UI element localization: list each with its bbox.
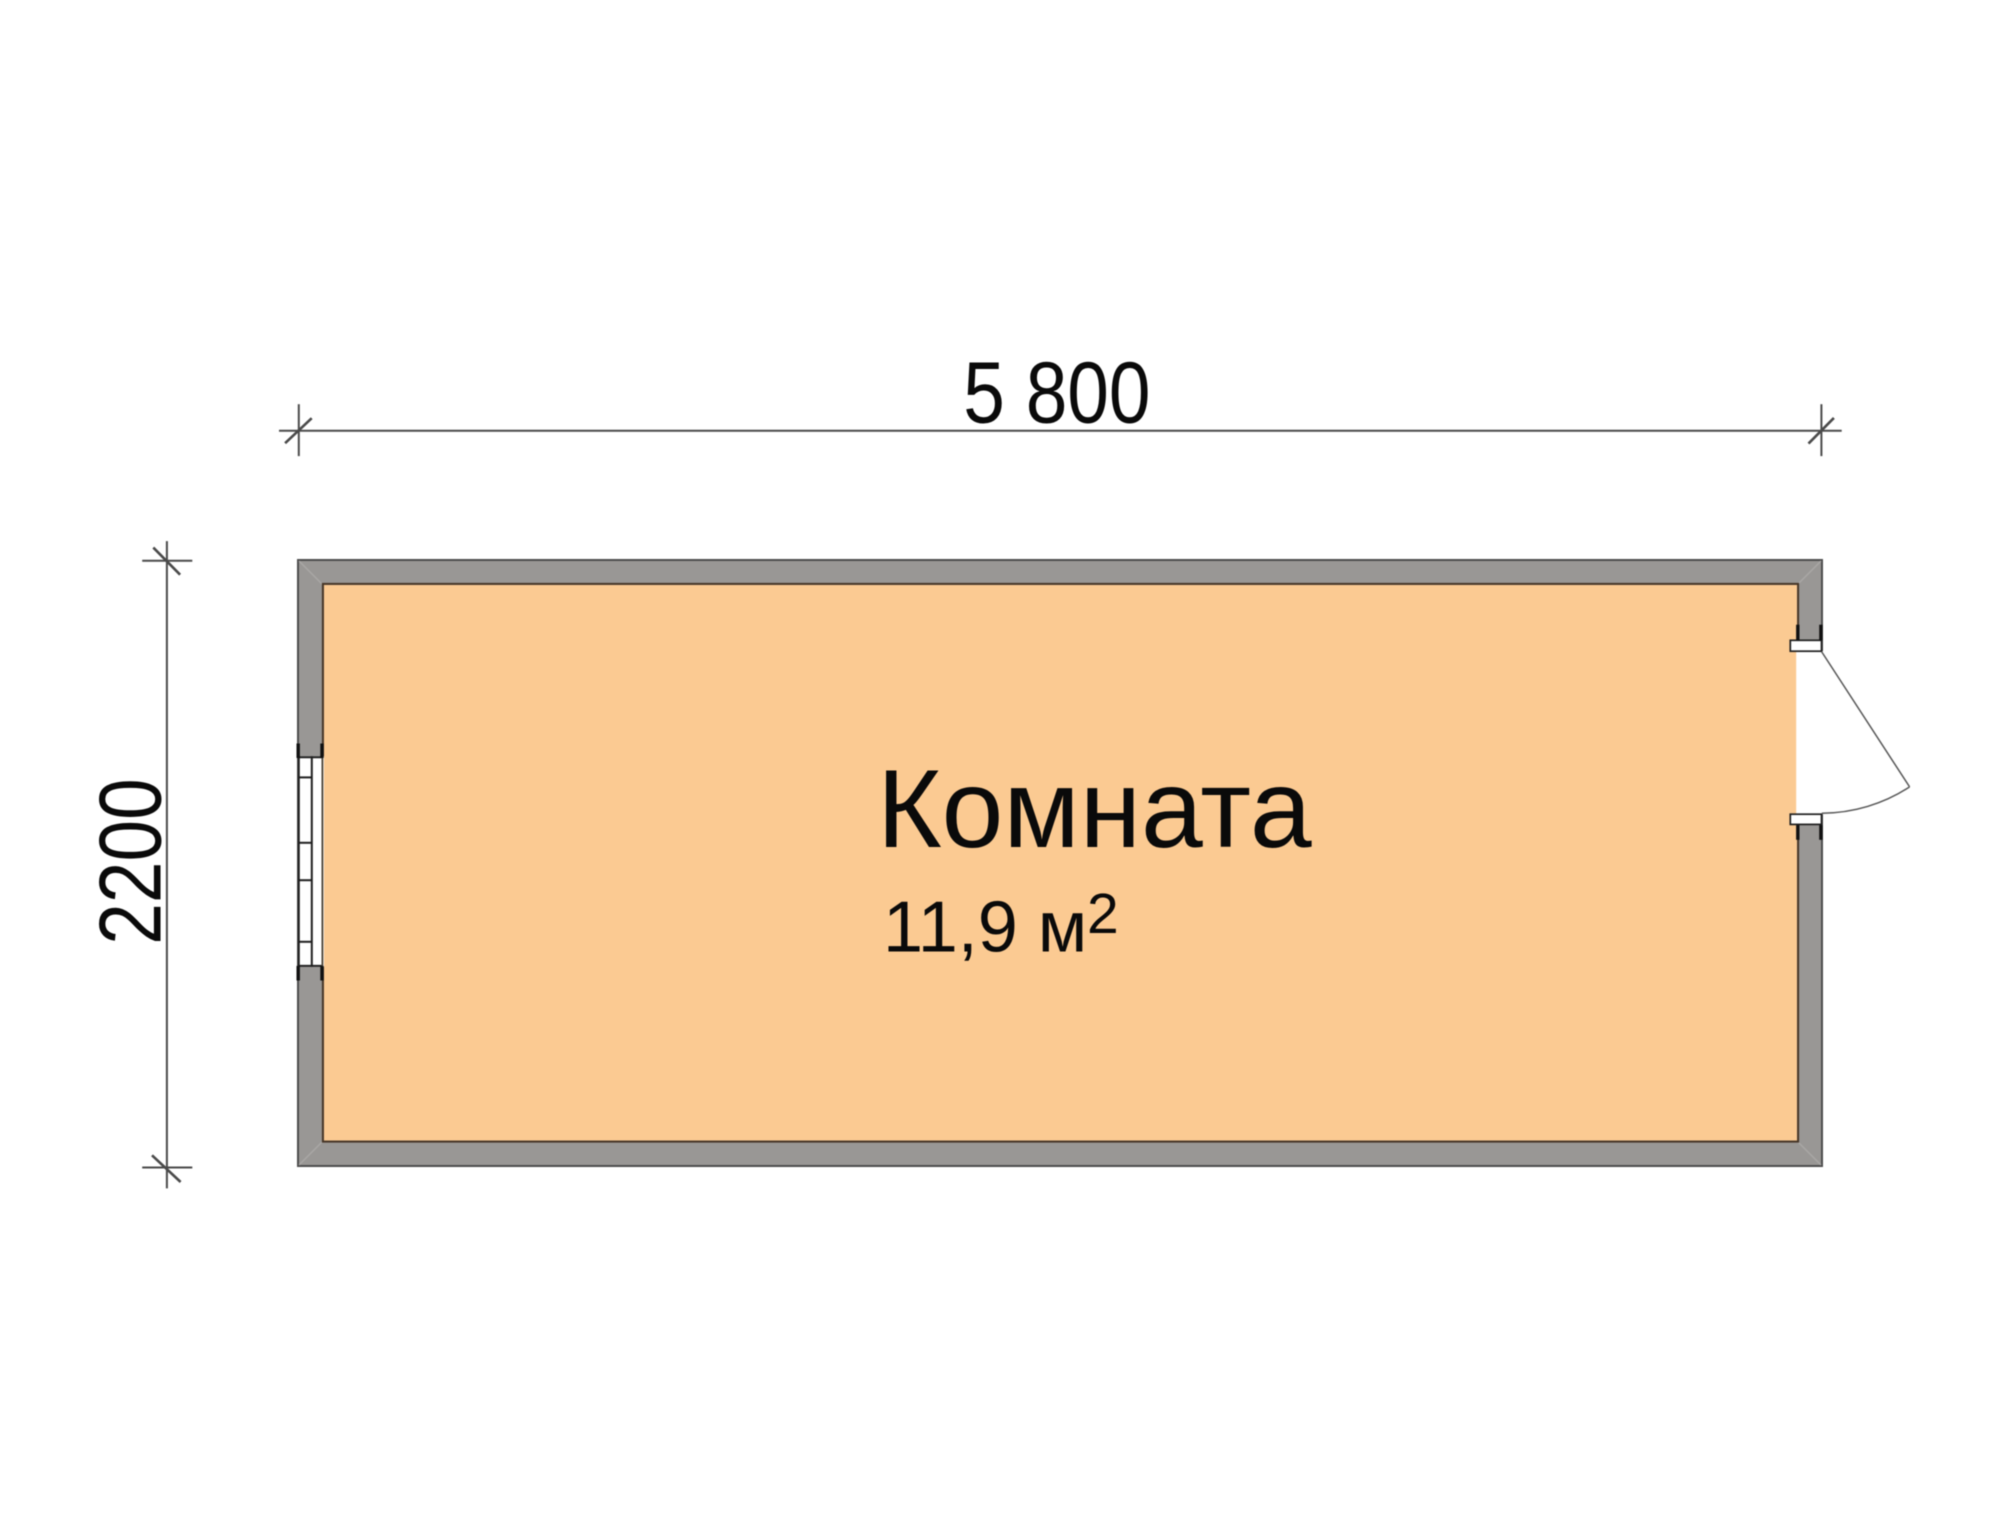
svg-text:11,9 м: 11,9 м: [883, 888, 1087, 968]
svg-text:2200: 2200: [82, 778, 180, 944]
svg-text:Комната: Комната: [877, 747, 1312, 871]
svg-text:2: 2: [1087, 882, 1119, 946]
svg-text:5 800: 5 800: [963, 345, 1150, 442]
